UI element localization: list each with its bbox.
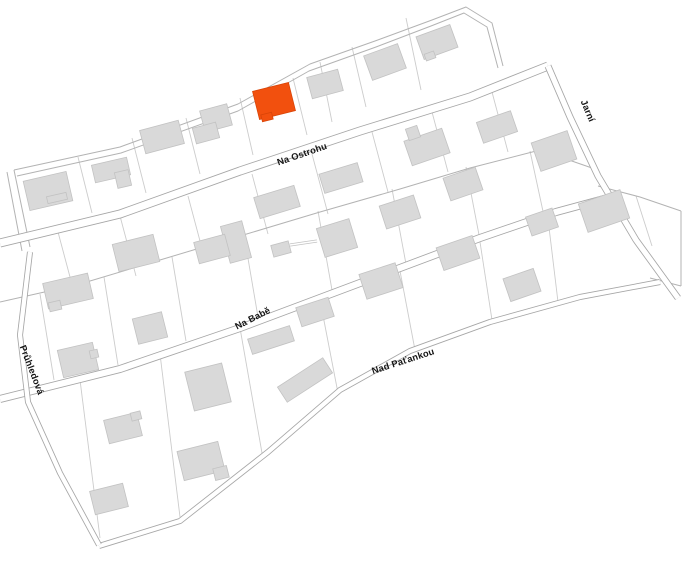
building[interactable] (112, 234, 160, 271)
building[interactable] (23, 171, 73, 210)
building[interactable] (379, 195, 421, 229)
building[interactable] (526, 208, 559, 236)
building[interactable] (436, 235, 480, 270)
highlighted-building[interactable] (253, 82, 296, 121)
building[interactable] (248, 326, 295, 355)
building[interactable] (307, 69, 344, 99)
parcel-line (293, 78, 307, 135)
parcel-line (160, 354, 180, 517)
building[interactable] (316, 219, 357, 258)
building-annex (89, 349, 99, 359)
building[interactable] (359, 263, 403, 299)
parcel-line (400, 271, 415, 350)
building[interactable] (319, 163, 363, 194)
building[interactable] (476, 111, 517, 144)
map-canvas: Na OstrohuJarníNa BaběNad PaťankouPrůhle… (0, 0, 683, 564)
highlighted-building-part[interactable] (253, 82, 296, 119)
building[interactable] (271, 241, 291, 257)
building[interactable] (114, 170, 131, 189)
parcel-line (78, 157, 92, 213)
parcel-line (172, 257, 186, 341)
street-jarni (548, 66, 678, 298)
building-annex (130, 411, 142, 421)
building[interactable] (132, 312, 167, 344)
building[interactable] (277, 358, 332, 403)
building[interactable] (578, 190, 629, 233)
parcel-map: Na OstrohuJarníNa BaběNad PaťankouPrůhle… (0, 0, 683, 564)
building[interactable] (254, 185, 301, 218)
parcel-line (104, 277, 118, 365)
street-label-nad-patankou: Nad Paťankou (371, 346, 436, 376)
building[interactable] (140, 120, 185, 154)
street-label-jarni: Jarní (579, 98, 597, 123)
building[interactable] (503, 268, 541, 301)
building[interactable] (185, 363, 232, 411)
parcel-line (186, 118, 200, 174)
parcel-line (372, 132, 388, 192)
building[interactable] (90, 483, 129, 515)
parcel-line (548, 219, 558, 302)
parcel-line (480, 242, 492, 320)
building[interactable] (443, 167, 483, 201)
building[interactable] (531, 131, 577, 172)
